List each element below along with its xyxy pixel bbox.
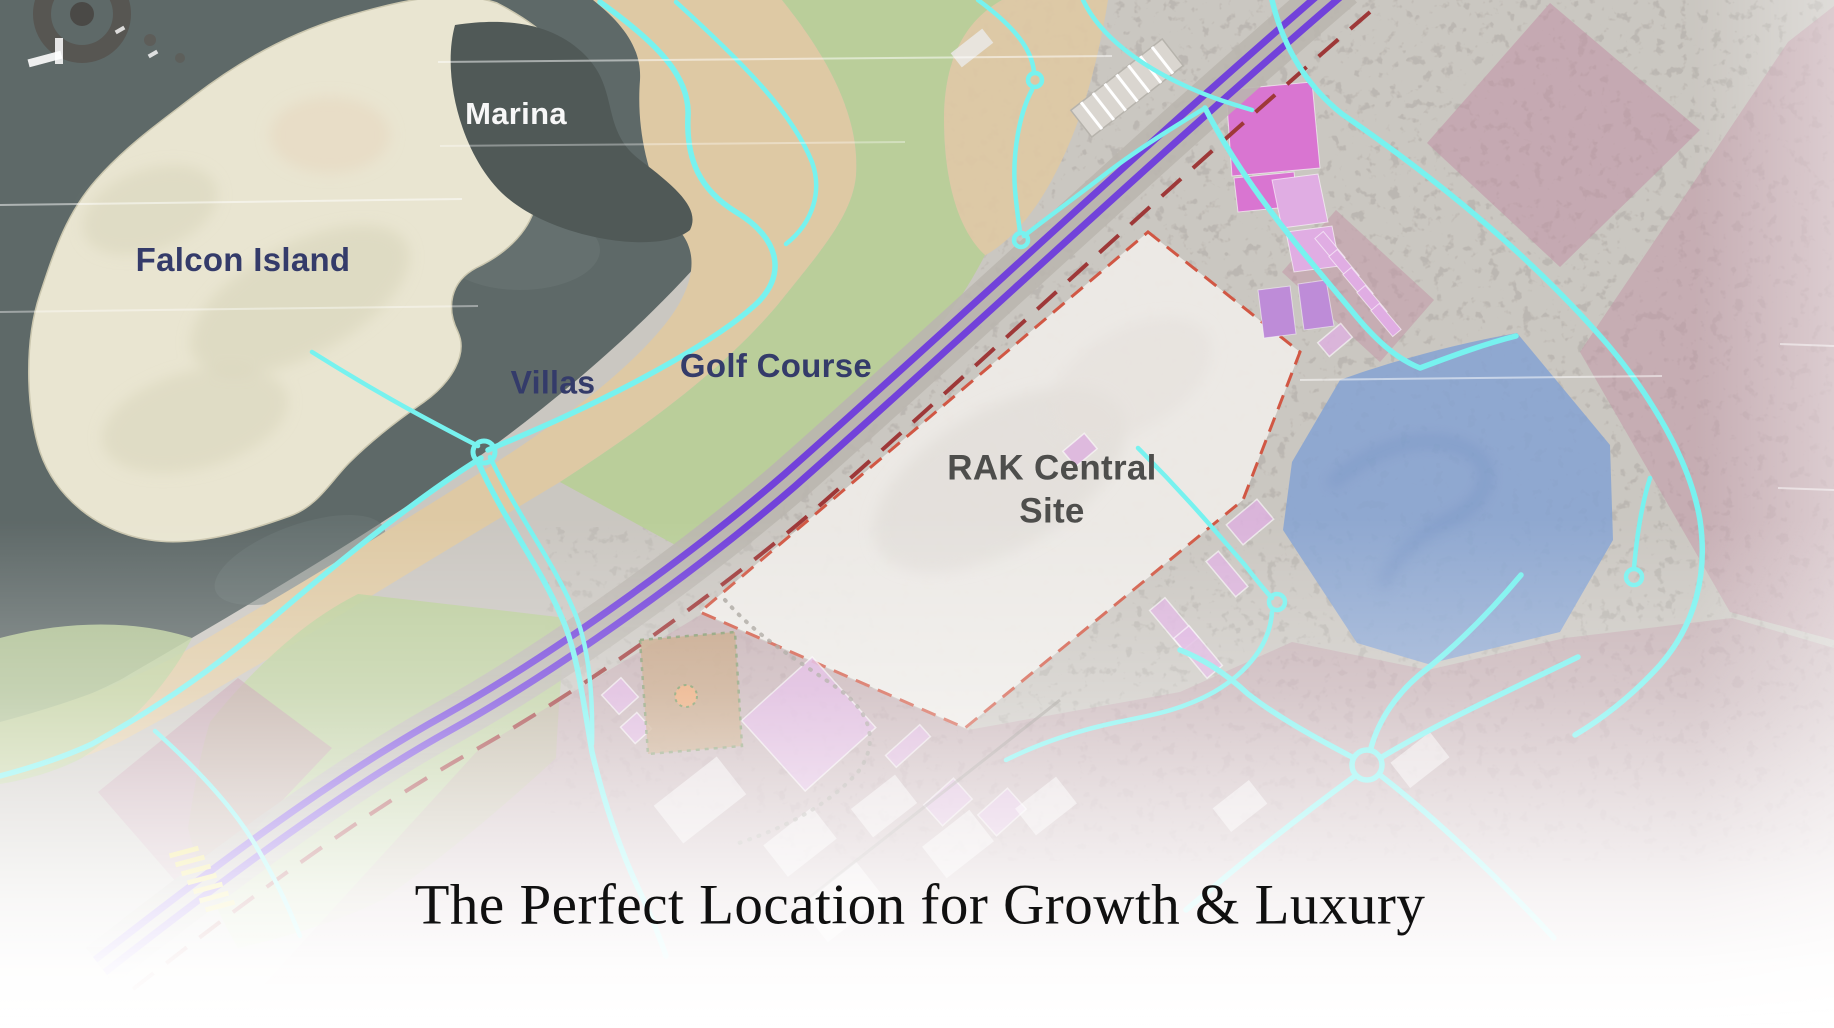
label-falcon-island: Falcon Island (136, 241, 351, 279)
label-rak-central-site: RAK Central Site (947, 447, 1156, 532)
label-marina: Marina (465, 96, 567, 132)
label-golf-course: Golf Course (680, 347, 872, 385)
label-rak-line1: RAK Central (947, 447, 1156, 490)
label-rak-line2: Site (947, 490, 1156, 533)
label-villas: Villas (511, 365, 596, 402)
tagline: The Perfect Location for Growth & Luxury (415, 873, 1426, 938)
masterplan-map: Marina Falcon Island Villas Golf Course … (0, 0, 1834, 1028)
brown-parcel (640, 632, 742, 754)
